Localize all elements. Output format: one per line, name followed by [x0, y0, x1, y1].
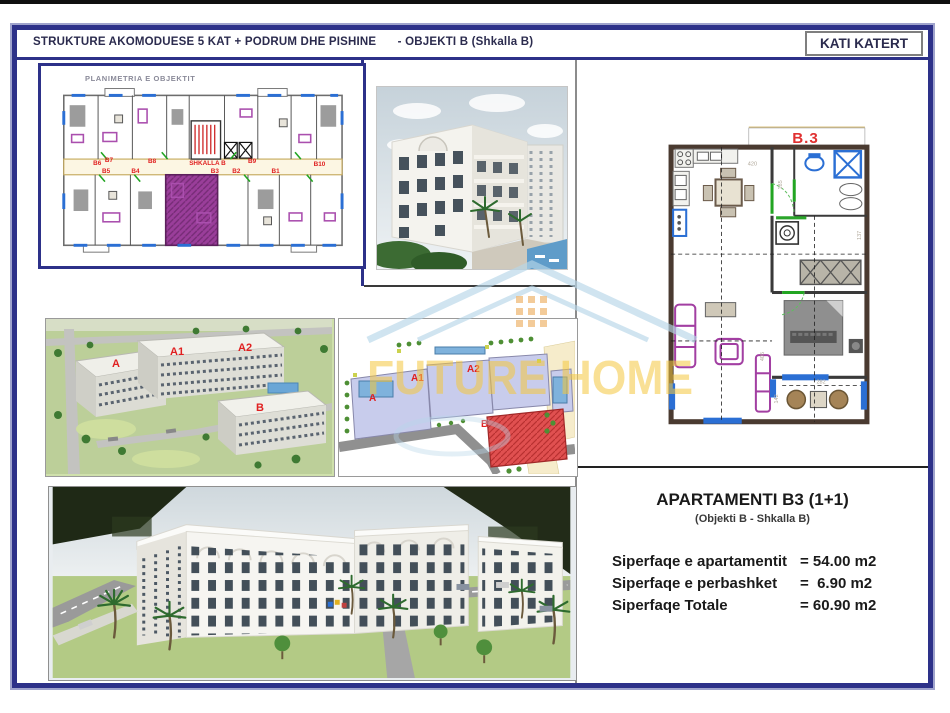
apartment-title: APARTAMENTI B3 (1+1)	[578, 490, 927, 510]
area-value: = 6.90 m2	[800, 573, 872, 595]
bottom-building-left	[137, 525, 355, 646]
bottom-building-right	[478, 536, 562, 631]
area-label: Siperfaqe Totale	[612, 595, 800, 617]
unit-label: B7	[105, 157, 114, 164]
building-b-highlight	[487, 409, 567, 467]
area-label: Siperfaqe e apartamentit	[612, 551, 800, 573]
dim-text: 142	[774, 394, 780, 403]
sheet-title-main: STRUKTURE AKOMODUESE 5 KAT + PODRUM DHE …	[33, 36, 376, 48]
right-panel-divider	[578, 466, 928, 468]
dim-text: 185	[778, 180, 784, 189]
unit-label: B1	[272, 168, 281, 175]
building-render-front-svg	[377, 87, 567, 269]
far-building	[525, 145, 563, 243]
unit-label: B3	[211, 168, 220, 175]
dim-text: 405	[760, 352, 766, 361]
site-label: A2	[467, 364, 480, 375]
unit-label: B9	[248, 158, 257, 165]
unit-label: B8	[148, 158, 157, 165]
site-plan-svg: A A1 A2 B	[339, 319, 575, 474]
aerial-label: A1	[170, 346, 184, 358]
unit-label: B6	[93, 160, 102, 167]
divider-under-render	[364, 285, 576, 287]
balcony	[787, 390, 848, 408]
aerial-render-panel: A A1 A2 B	[45, 318, 335, 477]
site-plan-panel: A A1 A2 B	[338, 318, 578, 477]
dim-text: 282	[816, 379, 825, 385]
sheet-title: STRUKTURE AKOMODUESE 5 KAT + PODRUM DHE …	[33, 36, 533, 48]
unit-plan-label: B.3	[792, 130, 819, 147]
building-render-front	[376, 86, 568, 270]
overview-floorplan-panel: PLANIMETRIA E OBJEKTIT	[38, 63, 366, 269]
sheet-title-suffix: - OBJEKTI B (Shkalla B)	[398, 36, 534, 48]
apartment-info-panel: APARTAMENTI B3 (1+1) (Objekti B - Shkall…	[578, 482, 927, 617]
main-building	[392, 125, 527, 252]
unit-b3-plan: B.3	[663, 122, 875, 462]
unit-label: B2	[232, 168, 241, 175]
apartment-subtitle: (Objekti B - Shkalla B)	[578, 513, 927, 525]
area-label: Siperfaqe e perbashket	[612, 573, 800, 595]
pool	[268, 383, 298, 393]
complex-render-panel	[48, 486, 577, 681]
site-label: B	[481, 419, 488, 430]
aerial-label: A	[112, 358, 120, 370]
area-value: = 54.00 m2	[800, 551, 876, 573]
tv-cabinet	[705, 303, 735, 317]
complex-render-svg	[49, 487, 574, 678]
unit-b3-plan-svg: B.3	[663, 122, 875, 462]
unit-label: B10	[314, 161, 326, 168]
floor-badge: KATI KATERT	[805, 31, 923, 56]
area-rows: Siperfaqe e apartamentit = 54.00 m2 Sipe…	[612, 551, 927, 617]
area-row: Siperfaqe e perbashket = 6.90 m2	[612, 573, 927, 595]
unit-b3-highlight	[166, 175, 218, 246]
dim-text: 137	[857, 231, 863, 240]
bottom-building-middle	[355, 525, 469, 634]
stair-core	[191, 121, 220, 159]
site-label: A	[369, 393, 376, 404]
unit-label: B4	[131, 168, 140, 175]
header-divider	[17, 57, 928, 60]
unit-label: B5	[102, 168, 111, 175]
area-value: = 60.90 m2	[800, 595, 876, 617]
dim-text: 420	[748, 161, 757, 167]
presentation-sheet: STRUKTURE AKOMODUESE 5 KAT + PODRUM DHE …	[0, 0, 950, 713]
overview-floorplan-svg: B6 B7 B5 B4 B8 SHKALLA B B3 B9 B2 B1 B10	[41, 66, 357, 260]
sheet-frame: STRUKTURE AKOMODUESE 5 KAT + PODRUM DHE …	[12, 25, 933, 688]
area-row: Siperfaqe Totale = 60.90 m2	[612, 595, 927, 617]
stair-label: SHKALLA B	[189, 160, 226, 167]
aerial-render-svg: A A1 A2 B	[46, 319, 332, 474]
top-edge-strip	[0, 0, 950, 4]
aerial-label: A2	[238, 342, 252, 354]
site-label: A1	[411, 373, 424, 384]
header: STRUKTURE AKOMODUESE 5 KAT + PODRUM DHE …	[17, 30, 928, 57]
aerial-label: B	[256, 402, 264, 414]
area-row: Siperfaqe e apartamentit = 54.00 m2	[612, 551, 927, 573]
